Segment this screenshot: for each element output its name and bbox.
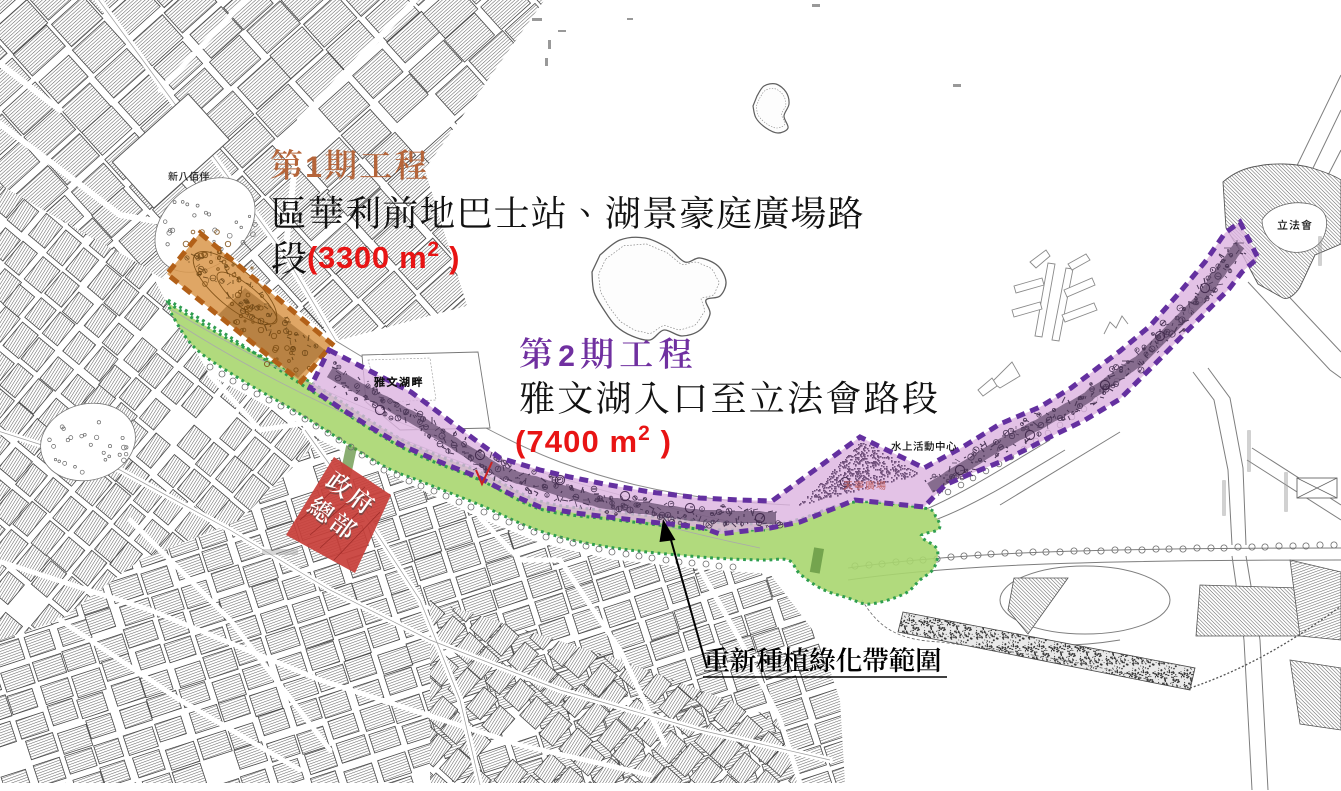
svg-text:第2期工程: 第2期工程 [519, 327, 698, 376]
svg-text:區華利前地巴士站、湖景豪庭廣場路: 區華利前地巴士站、湖景豪庭廣場路 [271, 186, 865, 237]
svg-text:雅文湖畔: 雅文湖畔 [373, 374, 424, 390]
svg-text:第1期工程: 第1期工程 [270, 140, 430, 187]
svg-text:立法會: 立法會 [1277, 217, 1313, 233]
svg-text:水上活動中心: 水上活動中心 [891, 439, 957, 454]
svg-text:重新種植綠化帶範圍: 重新種植綠化帶範圍 [703, 639, 942, 678]
svg-text:新八佰伴: 新八佰伴 [168, 168, 210, 183]
svg-text:雅文湖入口至立法會路段: 雅文湖入口至立法會路段 [519, 371, 940, 422]
svg-text:天寧廣場: 天寧廣場 [843, 477, 887, 492]
svg-text:段: 段 [271, 231, 307, 282]
